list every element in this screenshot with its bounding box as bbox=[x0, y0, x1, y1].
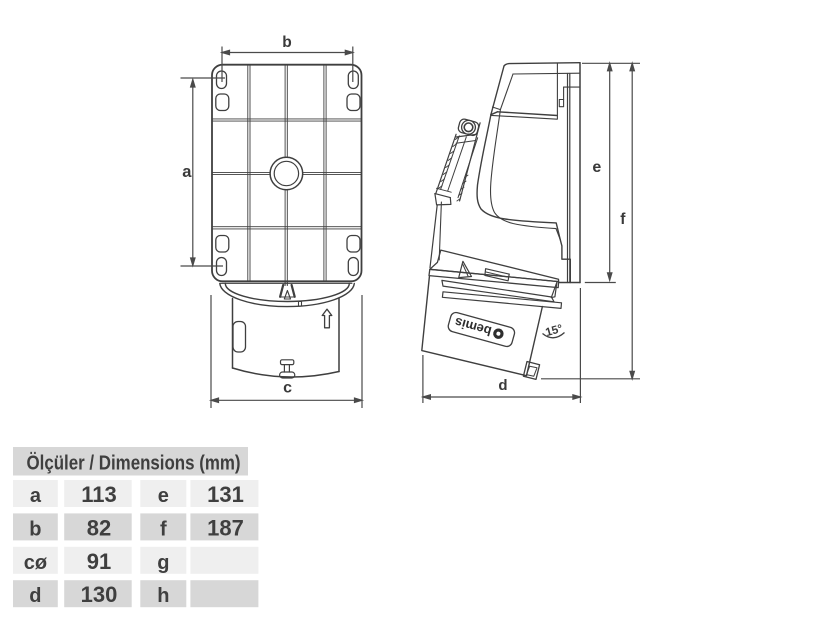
svg-text:g: g bbox=[157, 552, 169, 574]
svg-text:e: e bbox=[158, 485, 169, 507]
svg-text:131: 131 bbox=[207, 482, 244, 507]
svg-text:e: e bbox=[592, 159, 601, 176]
svg-text:c: c bbox=[283, 380, 292, 397]
svg-text:cø: cø bbox=[24, 552, 48, 574]
svg-text:91: 91 bbox=[87, 549, 111, 574]
svg-text:h: h bbox=[157, 585, 169, 607]
svg-text:d: d bbox=[498, 377, 507, 394]
svg-text:b: b bbox=[282, 34, 291, 51]
svg-text:f: f bbox=[160, 518, 167, 540]
svg-text:Ölçüler / Dimensions (mm): Ölçüler / Dimensions (mm) bbox=[27, 452, 241, 475]
svg-text:a: a bbox=[182, 163, 192, 181]
svg-text:b: b bbox=[29, 518, 41, 540]
svg-text:f: f bbox=[620, 211, 626, 228]
svg-text:187: 187 bbox=[207, 515, 244, 540]
svg-text:a: a bbox=[30, 485, 42, 507]
svg-text:130: 130 bbox=[81, 582, 118, 607]
svg-text:82: 82 bbox=[87, 515, 111, 540]
svg-text:d: d bbox=[29, 585, 41, 607]
svg-text:113: 113 bbox=[81, 482, 117, 507]
